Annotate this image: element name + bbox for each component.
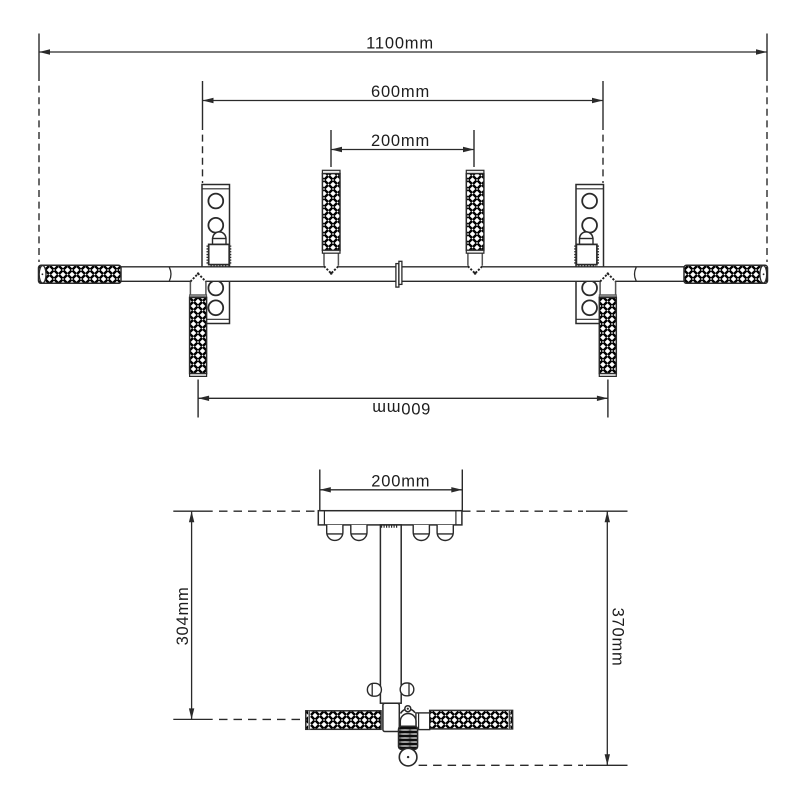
svg-text:600mm: 600mm	[371, 83, 430, 101]
svg-text:200mm: 200mm	[371, 472, 430, 490]
svg-text:200mm: 200mm	[371, 132, 430, 150]
svg-text:1100mm: 1100mm	[366, 35, 434, 53]
svg-text:600mm: 600mm	[371, 399, 430, 417]
svg-text:304mm: 304mm	[174, 586, 192, 645]
svg-text:370mm: 370mm	[609, 608, 627, 667]
